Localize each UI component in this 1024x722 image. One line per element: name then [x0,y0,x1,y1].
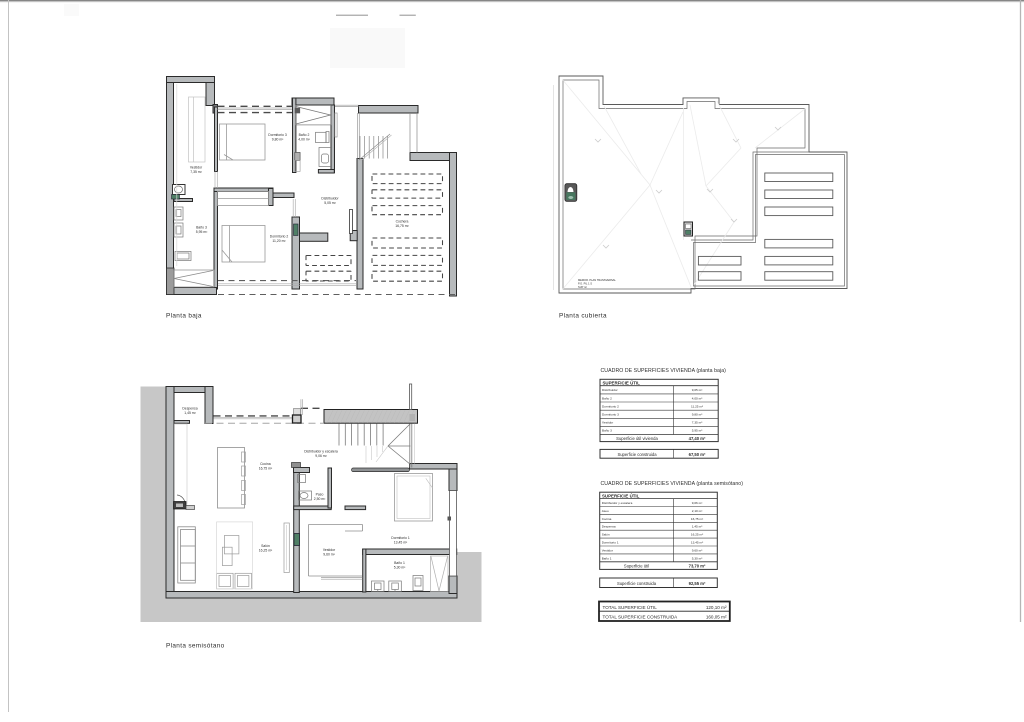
svg-text:Dormitorio 3: Dormitorio 3 [268,133,287,137]
svg-text:4,00 m²: 4,00 m² [298,138,310,142]
svg-text:Baño 3: Baño 3 [196,226,207,230]
svg-text:Dormitorio 2: Dormitorio 2 [270,235,289,239]
svg-text:Baño 1: Baño 1 [394,561,405,565]
svg-text:Vestidor: Vestidor [323,548,336,552]
svg-text:7,35 m²: 7,35 m² [190,170,202,174]
svg-text:7,35 m²: 7,35 m² [692,421,703,425]
svg-text:1,45 m²: 1,45 m² [692,525,703,529]
svg-text:9,06 m²: 9,06 m² [315,454,327,458]
svg-text:Paso: Paso [316,493,324,497]
svg-text:Dormitorio 3: Dormitorio 3 [602,413,619,417]
svg-text:Baño 2: Baño 2 [602,396,612,400]
svg-text:Cocina: Cocina [260,462,271,466]
svg-text:Cocina: Cocina [602,517,612,521]
svg-text:5,30 m²: 5,30 m² [692,556,703,560]
svg-text:Dormitorio 2: Dormitorio 2 [602,405,619,409]
svg-text:5,95 m²: 5,95 m² [692,429,703,433]
svg-text:Planta cubierta: Planta cubierta [559,313,607,320]
svg-text:Dormitorio 1: Dormitorio 1 [391,536,410,540]
svg-text:Vestidor: Vestidor [602,548,613,552]
svg-text:P.O. P/L 1 S: P.O. P/L 1 S [578,282,592,286]
svg-text:73,70 m²: 73,70 m² [689,563,706,568]
svg-text:Despensa: Despensa [602,525,616,529]
svg-text:SUP m²: SUP m² [578,285,587,289]
svg-text:Distribuidor: Distribuidor [321,197,339,201]
svg-text:Aseo: Aseo [602,509,609,513]
svg-text:Superficie útil vivienda: Superficie útil vivienda [616,436,658,441]
svg-text:CUADRO DE SUPERFICIES VIVIENDA: CUADRO DE SUPERFICIES VIVIENDA (planta b… [601,368,727,374]
svg-text:4,00 m²: 4,00 m² [692,396,703,400]
svg-text:9,80 m²: 9,80 m² [272,138,284,142]
svg-text:11,25 m²: 11,25 m² [691,405,703,409]
svg-text:Distribuidor: Distribuidor [602,388,618,392]
svg-text:9,06 m²: 9,06 m² [692,501,703,505]
svg-text:47,40 m²: 47,40 m² [689,436,706,441]
svg-text:Vestidor: Vestidor [190,166,203,170]
svg-text:TOTAL SUPERFICIE ÚTIL: TOTAL SUPERFICIE ÚTIL [603,604,658,610]
svg-text:16,75 m²: 16,75 m² [395,224,409,228]
svg-text:Baño 2: Baño 2 [299,133,310,137]
svg-text:2,50 m²: 2,50 m² [314,497,326,501]
svg-text:9,05 m²: 9,05 m² [692,388,703,392]
svg-text:Distribuidor y escalera: Distribuidor y escalera [304,450,338,454]
svg-text:92,55 m²: 92,55 m² [689,581,706,586]
svg-text:13,45 m²: 13,45 m² [691,541,703,545]
svg-text:SUPERFICIE ÚTIL: SUPERFICIE ÚTIL [603,380,641,385]
svg-text:2,10 m²: 2,10 m² [692,509,703,513]
svg-text:16,75 m²: 16,75 m² [691,517,703,521]
svg-text:13,45 m²: 13,45 m² [394,540,408,544]
svg-text:9,60 m²: 9,60 m² [692,548,703,552]
svg-text:5,05 m²: 5,05 m² [324,201,336,205]
svg-text:1,45 m²: 1,45 m² [184,411,196,415]
svg-text:16,25 m²: 16,25 m² [691,533,703,537]
svg-text:5,95 m²: 5,95 m² [196,230,208,234]
svg-text:Despensa: Despensa [182,407,197,411]
svg-text:120,10 m²: 120,10 m² [706,605,727,610]
svg-text:SUPERFICIE ÚTIL: SUPERFICIE ÚTIL [602,493,640,498]
svg-text:Vestidor: Vestidor [602,421,613,425]
svg-text:Distribuidor y escalera: Distribuidor y escalera [602,501,633,505]
svg-text:160,05 m²: 160,05 m² [706,615,727,620]
svg-text:Superficie útil: Superficie útil [624,563,649,568]
svg-text:67,50 m²: 67,50 m² [689,452,706,457]
svg-text:CUADRO DE SUPERFICIES VIVIENDA: CUADRO DE SUPERFICIES VIVIENDA (planta s… [601,481,744,487]
svg-text:9,60 m²: 9,60 m² [323,552,335,556]
svg-text:Baño 3: Baño 3 [602,429,612,433]
svg-text:11,20 m²: 11,20 m² [272,239,286,243]
svg-text:Salón: Salón [261,544,270,548]
svg-text:5,30 m²: 5,30 m² [394,566,406,570]
svg-text:Dormitorio 1: Dormitorio 1 [602,541,619,545]
svg-text:Planta semisótano: Planta semisótano [166,643,225,650]
svg-text:Cochera: Cochera [396,220,409,224]
svg-text:9,80 m²: 9,80 m² [692,413,703,417]
svg-text:16,75 m²: 16,75 m² [259,467,273,471]
svg-text:Superficie construida: Superficie construida [617,452,657,457]
svg-text:Salón: Salón [602,533,610,537]
svg-text:MEMOR. PLAN TRANSVERSAL: MEMOR. PLAN TRANSVERSAL [578,278,616,282]
svg-text:Planta baja: Planta baja [166,313,202,320]
svg-text:Baño 1: Baño 1 [602,556,612,560]
svg-text:TOTAL SUPERFICIE CONSTRUIDA: TOTAL SUPERFICIE CONSTRUIDA [603,615,679,620]
svg-text:Superficie construida: Superficie construida [617,581,657,586]
svg-text:16,25 m²: 16,25 m² [259,548,273,552]
